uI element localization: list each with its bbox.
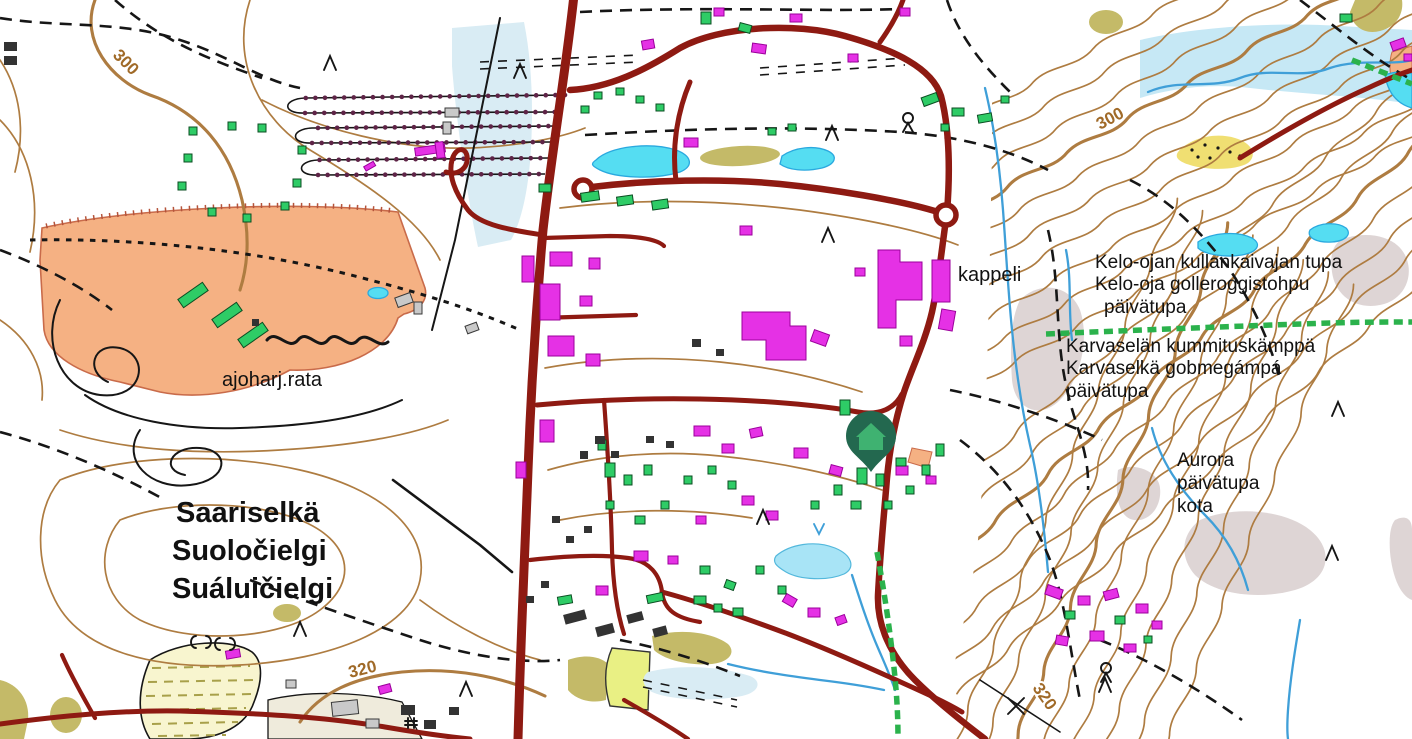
label-aurora-1: Aurora bbox=[1177, 450, 1234, 471]
lake bbox=[780, 148, 834, 171]
roundabout bbox=[936, 205, 956, 225]
lake bbox=[1309, 224, 1348, 242]
place-label-sme: Suoločielgi bbox=[172, 535, 327, 567]
place-label-smn: Suáluičielgi bbox=[172, 573, 333, 605]
label-aurora-3: kota bbox=[1177, 496, 1213, 517]
pylon-symbol bbox=[1008, 698, 1024, 714]
buildings-gray bbox=[286, 108, 479, 728]
topographic-map[interactable]: Saariselkä Suoločielgi Suáluičielgi ajoh… bbox=[0, 0, 1412, 739]
label-karvaselka-3: päivätupa bbox=[1066, 381, 1149, 402]
label-ajoharj-rata: ajoharj.rata bbox=[222, 369, 323, 391]
place-label-fi: Saariselkä bbox=[176, 497, 320, 529]
buildings-black bbox=[4, 42, 724, 729]
label-kappeli: kappeli bbox=[958, 264, 1021, 286]
pond bbox=[368, 288, 388, 299]
label-karvaselka-2: Karvaselkä gobmegámpá bbox=[1066, 358, 1282, 379]
label-aurora-2: päivätupa bbox=[1177, 473, 1260, 494]
label-kelo-oja-3: päivätupa bbox=[1104, 297, 1187, 318]
label-kelo-oja-1: Kelo-ojan kullankaivajan tupa bbox=[1095, 252, 1343, 273]
stream bbox=[1287, 620, 1300, 739]
village-pond bbox=[774, 544, 850, 579]
label-karvaselka-1: Karvaselän kummituskämppä bbox=[1066, 336, 1316, 357]
label-kelo-oja-2: Kelo-oja golleroggistohpu bbox=[1095, 274, 1309, 295]
contour-label-320-right: 320 bbox=[1029, 679, 1061, 713]
